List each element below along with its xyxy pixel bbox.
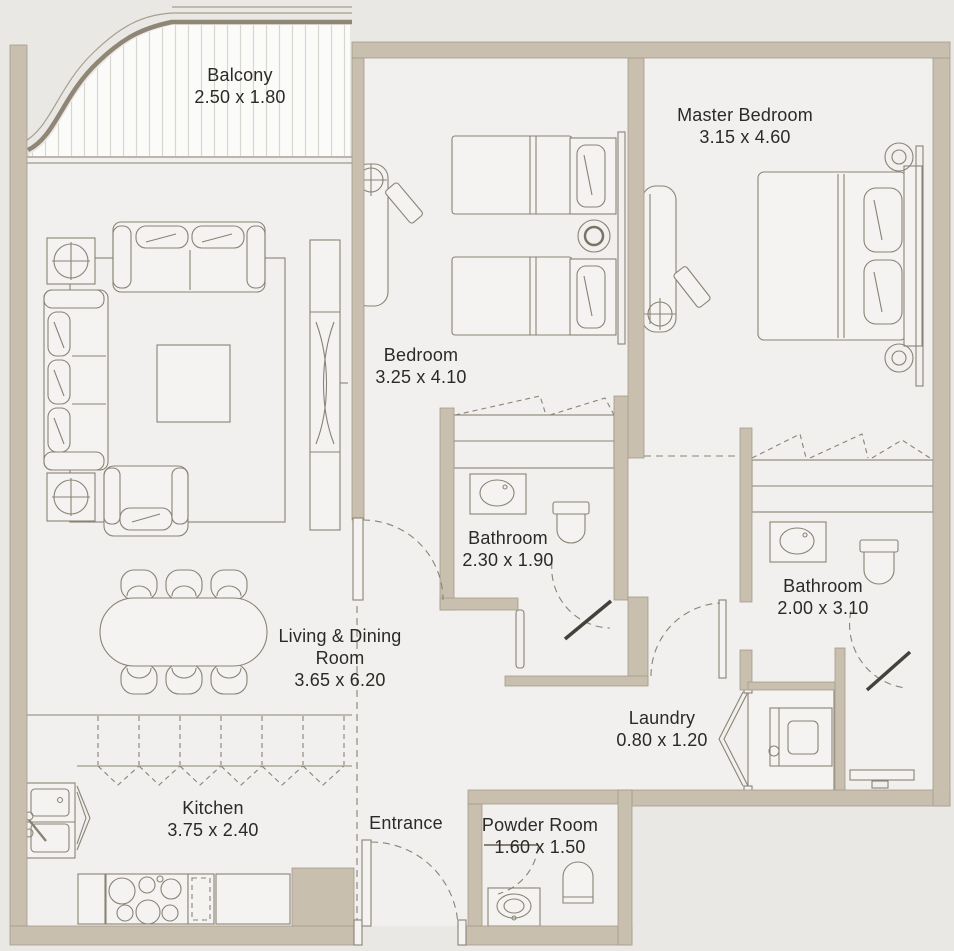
toilet xyxy=(860,540,898,552)
fridge xyxy=(216,874,290,924)
room-label-kitchen: Kitchen3.75 x 2.40 xyxy=(118,797,308,841)
room-label-bathroom-2: Bathroom2.00 x 3.10 xyxy=(738,575,908,619)
room-label-living-dining: Living & DiningRoom3.65 x 6.20 xyxy=(245,625,435,691)
room-label-master-bedroom: Master Bedroom3.15 x 4.60 xyxy=(625,104,865,148)
room-label-balcony: Balcony2.50 x 1.80 xyxy=(140,64,340,108)
room-label-bathroom-1: Bathroom2.30 x 1.90 xyxy=(423,527,593,571)
room-label-powder-room: Powder Room1.60 x 1.50 xyxy=(445,814,635,858)
floor-plan: Balcony2.50 x 1.80 Master Bedroom3.15 x … xyxy=(0,0,954,951)
dining-set xyxy=(100,570,267,694)
twin-bed xyxy=(452,136,572,214)
kitchen-sink xyxy=(25,783,75,858)
toilet xyxy=(553,502,589,514)
shower-bench xyxy=(850,770,914,780)
dining-table xyxy=(100,598,267,666)
room-label-bedroom: Bedroom3.25 x 4.10 xyxy=(321,344,521,388)
room-label-laundry: Laundry0.80 x 1.20 xyxy=(582,707,742,751)
twin-bed xyxy=(452,257,572,335)
